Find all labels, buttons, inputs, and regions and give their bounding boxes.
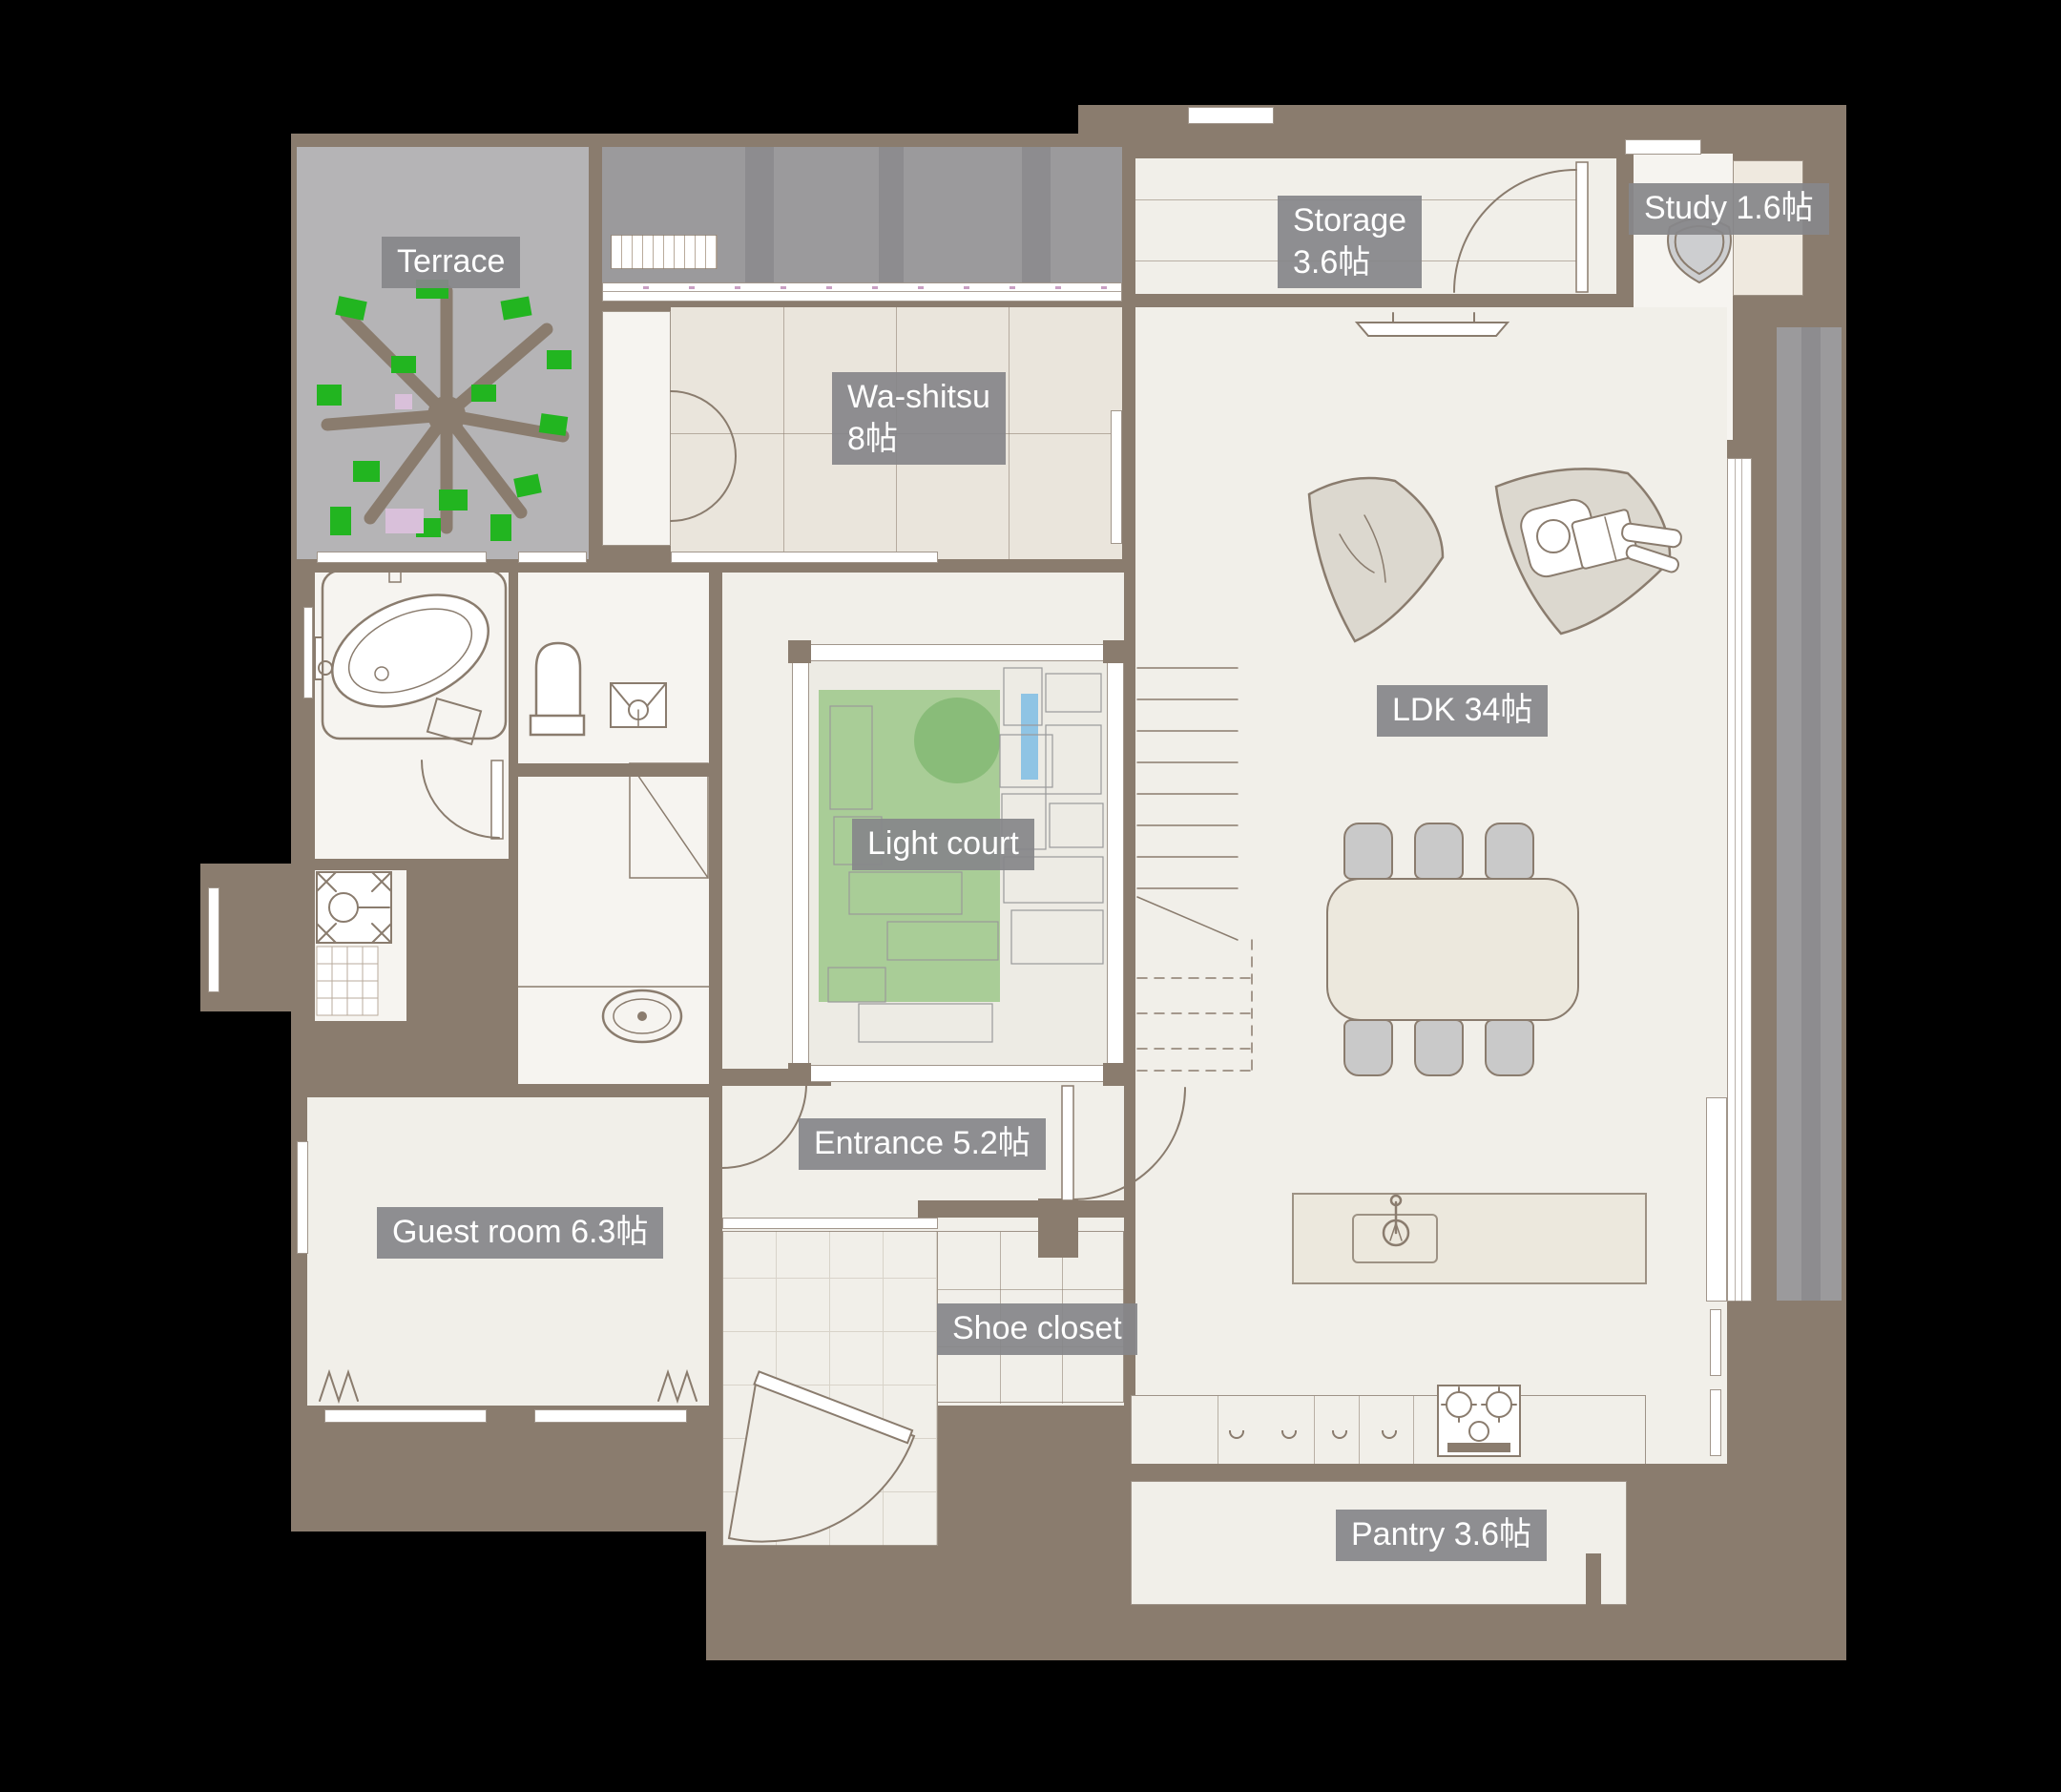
guest-room-south-window	[534, 1409, 687, 1423]
deck-stripe	[879, 147, 904, 298]
room-label-text: Light court	[867, 823, 1019, 865]
light-court-window-west	[792, 659, 809, 1067]
washitsu-closet	[602, 311, 671, 546]
ldk-east-window	[1727, 458, 1752, 1302]
floor-plan: Terrace Wa-shitsu 8帖 Storage 3.6帖 Study …	[0, 0, 2061, 1792]
room-label-ldk: LDK 34帖	[1377, 685, 1548, 737]
room-label-entrance: Entrance 5.2帖	[799, 1118, 1046, 1170]
room-label-text: Study 1.6帖	[1644, 188, 1814, 230]
light-court-tree-canopy	[914, 698, 1000, 783]
room-size-text: 3.6帖	[1293, 242, 1406, 284]
east-slit-window	[1710, 1389, 1721, 1456]
dining-chair	[1485, 1019, 1534, 1076]
kitchen-east-window	[1706, 1097, 1727, 1302]
terrace-south-window	[518, 552, 587, 563]
cabinet-handle-icon	[1332, 1430, 1347, 1439]
east-slit-window	[1710, 1309, 1721, 1376]
deck-grate	[611, 235, 718, 269]
dining-chair	[1343, 1019, 1393, 1076]
light-court-post	[788, 640, 811, 663]
toilet-floor	[518, 573, 709, 763]
light-court-post	[788, 1063, 811, 1086]
room-label-terrace: Terrace	[382, 237, 520, 288]
island-sink	[1352, 1214, 1438, 1263]
room-label-text: Storage	[1293, 200, 1406, 242]
deck-stripe	[1022, 147, 1051, 298]
entrance-step	[722, 1218, 938, 1229]
cabinet-handle-icon	[1382, 1430, 1397, 1439]
room-label-text: Shoe closet	[952, 1308, 1122, 1350]
washitsu-south-door	[671, 552, 938, 563]
room-label-text: LDK 34帖	[1392, 690, 1532, 732]
storage-top-window	[1188, 107, 1274, 124]
room-label-guest-room: Guest room 6.3帖	[377, 1207, 663, 1259]
terrace-south-window	[317, 552, 487, 563]
wall-shoe-closet-top	[918, 1200, 1124, 1218]
deck-stripe	[745, 147, 774, 298]
laundry-floor	[315, 870, 406, 1021]
room-label-washitsu: Wa-shitsu 8帖	[832, 372, 1006, 465]
room-label-light-court: Light court	[852, 819, 1034, 870]
east-louver-screen	[1777, 327, 1842, 1301]
room-label-text: Entrance 5.2帖	[814, 1123, 1030, 1165]
room-label-storage: Storage 3.6帖	[1278, 196, 1422, 288]
guest-room-west-window	[297, 1141, 308, 1254]
guest-room-south-window	[324, 1409, 487, 1423]
entrance-doma-tiles	[722, 1231, 938, 1546]
room-label-text: Guest room 6.3帖	[392, 1212, 648, 1254]
dining-chair	[1414, 1019, 1464, 1076]
room-size-text: 8帖	[847, 419, 990, 461]
study-top-window	[1625, 139, 1701, 155]
light-court-window-east	[1107, 659, 1124, 1067]
room-label-text: Pantry 3.6帖	[1351, 1514, 1531, 1556]
deck-sliding-door	[602, 282, 1122, 302]
kitchen-back-wall	[1131, 1464, 1655, 1481]
room-label-pantry: Pantry 3.6帖	[1336, 1510, 1547, 1561]
dining-chair	[1343, 823, 1393, 880]
room-label-shoe-closet: Shoe closet	[937, 1303, 1137, 1355]
room-label-text: Terrace	[397, 241, 505, 283]
room-label-text: Wa-shitsu	[847, 377, 990, 419]
deck-floor	[602, 147, 1122, 298]
light-court-post	[1103, 640, 1126, 663]
washroom-floor	[518, 777, 709, 1084]
cabinet-handle-icon	[1281, 1430, 1297, 1439]
cabinet-handle-icon	[1229, 1430, 1244, 1439]
wall-pillar	[1038, 1198, 1078, 1258]
bathroom-floor	[315, 573, 509, 859]
washitsu-east-door	[1111, 410, 1122, 544]
dining-table	[1326, 878, 1579, 1021]
light-court-window-north	[807, 644, 1107, 661]
pantry-door-jamb	[1586, 1553, 1601, 1607]
dining-chair	[1485, 823, 1534, 880]
room-label-study: Study 1.6帖	[1629, 183, 1829, 235]
light-court-water-feature	[1021, 694, 1038, 780]
terrace-floor	[297, 147, 589, 559]
light-court-window-south	[807, 1065, 1107, 1082]
dining-chair	[1414, 823, 1464, 880]
bathroom-west-window	[303, 607, 313, 698]
west-notch-window	[208, 887, 219, 992]
light-court-post	[1103, 1063, 1126, 1086]
kitchen-island	[1292, 1193, 1647, 1284]
kitchen-counter	[1131, 1395, 1646, 1466]
